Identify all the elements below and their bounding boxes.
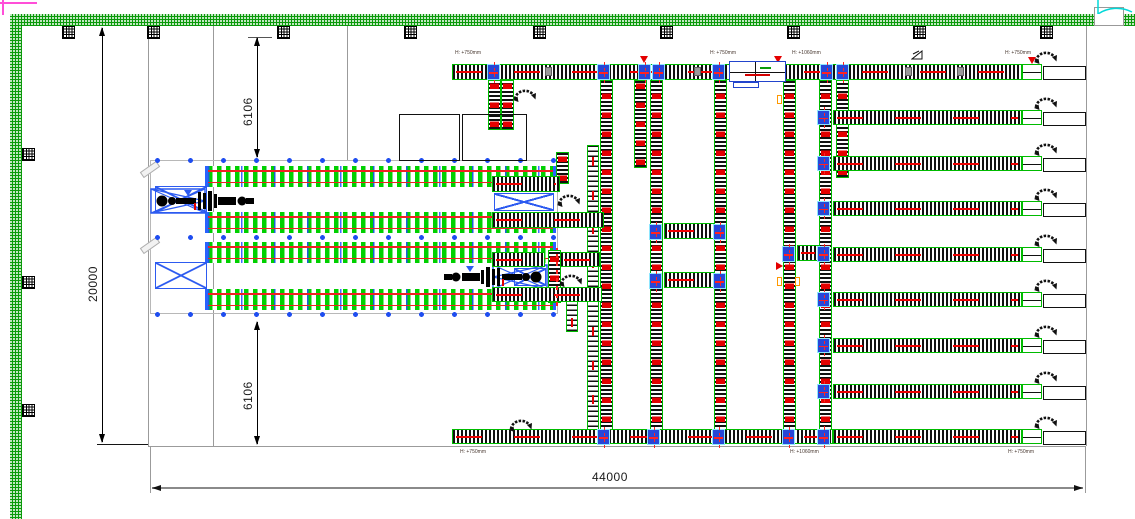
conveyor-horizontal — [492, 252, 545, 267]
grid-line — [1085, 446, 1086, 493]
slope-mark-icon — [911, 47, 923, 57]
conveyor-load-marks — [652, 83, 661, 441]
sensor-marker — [777, 95, 782, 104]
lane-end-roller-box — [1022, 247, 1042, 262]
conveyor-load-marks — [837, 299, 1018, 301]
conveyor-load-marks — [837, 208, 1018, 210]
dim-text-offset-bottom: 6106 — [241, 381, 255, 410]
conveyor-horizontal — [664, 272, 714, 288]
column-marker — [22, 276, 35, 289]
column-marker — [277, 26, 290, 39]
crane-position-marker — [184, 190, 192, 196]
conveyor-load-marks — [837, 436, 1018, 438]
conveyor-lane — [833, 110, 1022, 125]
conveyor-load-marks — [837, 345, 1018, 347]
pallet-staging-spot — [1043, 203, 1086, 217]
conveyor-junction — [712, 429, 725, 445]
flow-triangle-icon — [1028, 57, 1036, 64]
pallet-staging-spot — [1043, 431, 1086, 445]
height-label: H: +750mm — [1005, 50, 1031, 56]
door-swing-icon — [1096, 0, 1134, 14]
pallet-staging-spot — [1043, 112, 1086, 126]
conveyor-junction — [782, 429, 795, 445]
dim-line-total-width — [152, 487, 1083, 489]
rotary-arrow-icon — [1033, 43, 1059, 65]
conveyor-junction — [817, 156, 830, 171]
conveyor-horizontal — [797, 245, 819, 261]
pallet-staging-spot — [1043, 386, 1086, 400]
pallet-stop-marker — [957, 67, 964, 76]
conveyor-load-marks — [837, 163, 1018, 165]
flow-triangle-icon — [640, 56, 648, 63]
drawing-layers: H: +750mmH: +750mmH: +1060mmH: +750mmH: … — [0, 0, 1135, 519]
lane-end-roller-box — [1022, 110, 1042, 125]
column-marker — [533, 26, 546, 39]
cad-floorplan-canvas: H: +750mmH: +750mmH: +1060mmH: +750mmH: … — [0, 0, 1135, 519]
conveyor-load-marks — [837, 117, 1018, 119]
height-label: H: +750mm — [1008, 449, 1034, 455]
pallet-staging-spot — [1043, 249, 1086, 263]
conveyor-load-marks — [496, 183, 556, 185]
rotary-arrow-icon — [1033, 271, 1059, 293]
height-label: H: +1060mm — [792, 50, 821, 56]
rotary-arrow-icon — [556, 186, 582, 208]
cross-brace-frame — [155, 262, 207, 289]
pallet-staging-spot — [1043, 66, 1086, 80]
conveyor-load-marks — [801, 252, 815, 254]
grid-line — [150, 446, 151, 493]
lane-end-roller-box — [1022, 201, 1042, 216]
conveyor-load-marks — [456, 436, 829, 438]
pallet-staging-spot — [1043, 294, 1086, 308]
dim-line-offset-bottom — [257, 322, 258, 444]
conveyor-load-marks — [564, 259, 596, 261]
column-marker — [1040, 26, 1053, 39]
pallet-stop-marker — [694, 67, 701, 76]
wall-left — [10, 14, 22, 519]
conveyor-load-marks — [636, 83, 645, 165]
rotary-arrow-icon — [1033, 89, 1059, 111]
conveyor-horizontal — [492, 176, 560, 192]
conveyor-junction — [817, 384, 830, 399]
conveyor-horizontal — [560, 252, 600, 267]
conveyor-lane — [833, 247, 1022, 262]
conveyor-lane — [833, 338, 1022, 353]
crane-position-marker — [466, 266, 474, 272]
dim-text-total-width: 44000 — [592, 470, 628, 484]
conveyor-horizontal — [492, 212, 604, 228]
conveyor-load-marks — [602, 83, 611, 441]
conveyor-junction — [487, 64, 500, 80]
column-marker — [147, 26, 160, 39]
lane-end-roller-box — [1022, 338, 1042, 353]
conveyor-control-station — [729, 61, 786, 82]
conveyor-horizontal — [664, 223, 714, 239]
sensor-marker — [777, 277, 782, 286]
conveyor-load-marks — [496, 259, 541, 261]
conveyor-load-marks — [496, 294, 598, 296]
conveyor-junction — [597, 429, 610, 445]
dim-text-offset-top: 6106 — [241, 97, 255, 126]
column-marker — [404, 26, 417, 39]
flow-direction-marker — [776, 262, 783, 270]
rotary-arrow-icon — [1033, 317, 1059, 339]
rack-column-dots — [154, 311, 556, 318]
conveyor-junction — [713, 224, 726, 240]
rotary-arrow-icon — [508, 411, 534, 433]
conveyor-lane — [833, 429, 1022, 444]
pallet-staging-spot — [1043, 340, 1086, 354]
dim-extension-line — [97, 444, 148, 445]
wall-top — [10, 14, 1135, 26]
column-marker — [660, 26, 673, 39]
height-label: H: +750mm — [710, 50, 736, 56]
dim-line-offset-top — [257, 38, 258, 157]
conveyor-lane — [833, 201, 1022, 216]
conveyor-vertical — [600, 80, 613, 444]
conveyor-junction — [817, 338, 830, 353]
conveyor-junction — [649, 224, 662, 240]
control-station-text-mark — [760, 67, 771, 69]
pallet-stop-marker — [545, 67, 552, 76]
height-label: H: +750mm — [455, 50, 481, 56]
conveyor-junction — [817, 110, 830, 125]
conveyor-junction — [820, 64, 833, 80]
column-marker — [913, 26, 926, 39]
rack-column-dots — [154, 234, 556, 241]
transfer-centerline — [556, 248, 558, 306]
column-marker — [787, 26, 800, 39]
control-station-tab — [733, 82, 759, 88]
conveyor-junction — [652, 64, 665, 80]
conveyor-load-marks — [668, 279, 710, 281]
rotary-arrow-icon — [1033, 363, 1059, 385]
conveyor-junction — [649, 273, 662, 289]
dim-tick — [248, 37, 272, 38]
pallet-stop-marker — [905, 67, 912, 76]
conveyor-junction — [782, 246, 795, 262]
dim-line-total-height — [102, 28, 103, 442]
conveyor-load-marks — [716, 83, 725, 441]
rotary-arrow-icon — [1033, 135, 1059, 157]
dim-text-total-height: 20000 — [86, 266, 100, 302]
conveyor-load-marks — [837, 391, 1018, 393]
sensor-marker — [795, 277, 800, 286]
lane-end-roller-box — [1022, 292, 1042, 307]
conveyor-horizontal — [492, 287, 602, 302]
rotary-arrow-icon — [558, 266, 584, 288]
column-marker — [22, 404, 35, 417]
control-station-divider — [730, 72, 785, 73]
conveyor-load-marks — [496, 219, 600, 221]
conveyor-junction — [647, 429, 660, 445]
conveyor-junction — [713, 273, 726, 289]
lane-end-roller-box — [1022, 384, 1042, 399]
conveyor-lane — [833, 384, 1022, 399]
pallet-staging-spot — [1043, 158, 1086, 172]
conveyor-junction — [817, 429, 830, 445]
conveyor-junction — [817, 246, 830, 262]
grid-line — [148, 26, 149, 446]
lane-end-roller-box — [1022, 156, 1042, 171]
stacker-crane — [150, 188, 262, 214]
conveyor-junction — [597, 64, 610, 80]
control-station-text-mark — [745, 74, 770, 76]
conveyor-junction — [817, 201, 830, 216]
conveyor-load-marks — [668, 230, 710, 232]
grid-line — [347, 26, 348, 161]
height-label: H: +1060mm — [790, 449, 819, 455]
conveyor-lane — [833, 156, 1022, 171]
conveyor-junction — [712, 64, 725, 80]
height-label: H: +750mm — [460, 449, 486, 455]
column-marker — [62, 26, 75, 39]
lane-end-roller-box — [1022, 64, 1042, 80]
rotary-arrow-icon — [1033, 180, 1059, 202]
grid-line — [1086, 26, 1087, 446]
conveyor-vertical — [650, 80, 663, 444]
rotary-arrow-icon — [1033, 226, 1059, 248]
platform-outline — [462, 114, 527, 161]
lane-end-roller-box — [1022, 429, 1042, 444]
column-marker — [22, 148, 35, 161]
conveyor-lane — [833, 292, 1022, 307]
conveyor-vertical — [634, 80, 647, 168]
conveyor-vertical — [714, 80, 727, 444]
platform-outline — [399, 114, 460, 161]
conveyor-junction — [817, 292, 830, 307]
conveyor-junction — [638, 64, 651, 80]
grid-line — [148, 446, 1086, 447]
conveyor-load-marks — [837, 254, 1018, 256]
cross-brace-frame — [494, 193, 554, 211]
rotary-arrow-icon — [512, 81, 538, 103]
rotary-arrow-icon — [1033, 408, 1059, 430]
conveyor-junction — [836, 64, 849, 80]
